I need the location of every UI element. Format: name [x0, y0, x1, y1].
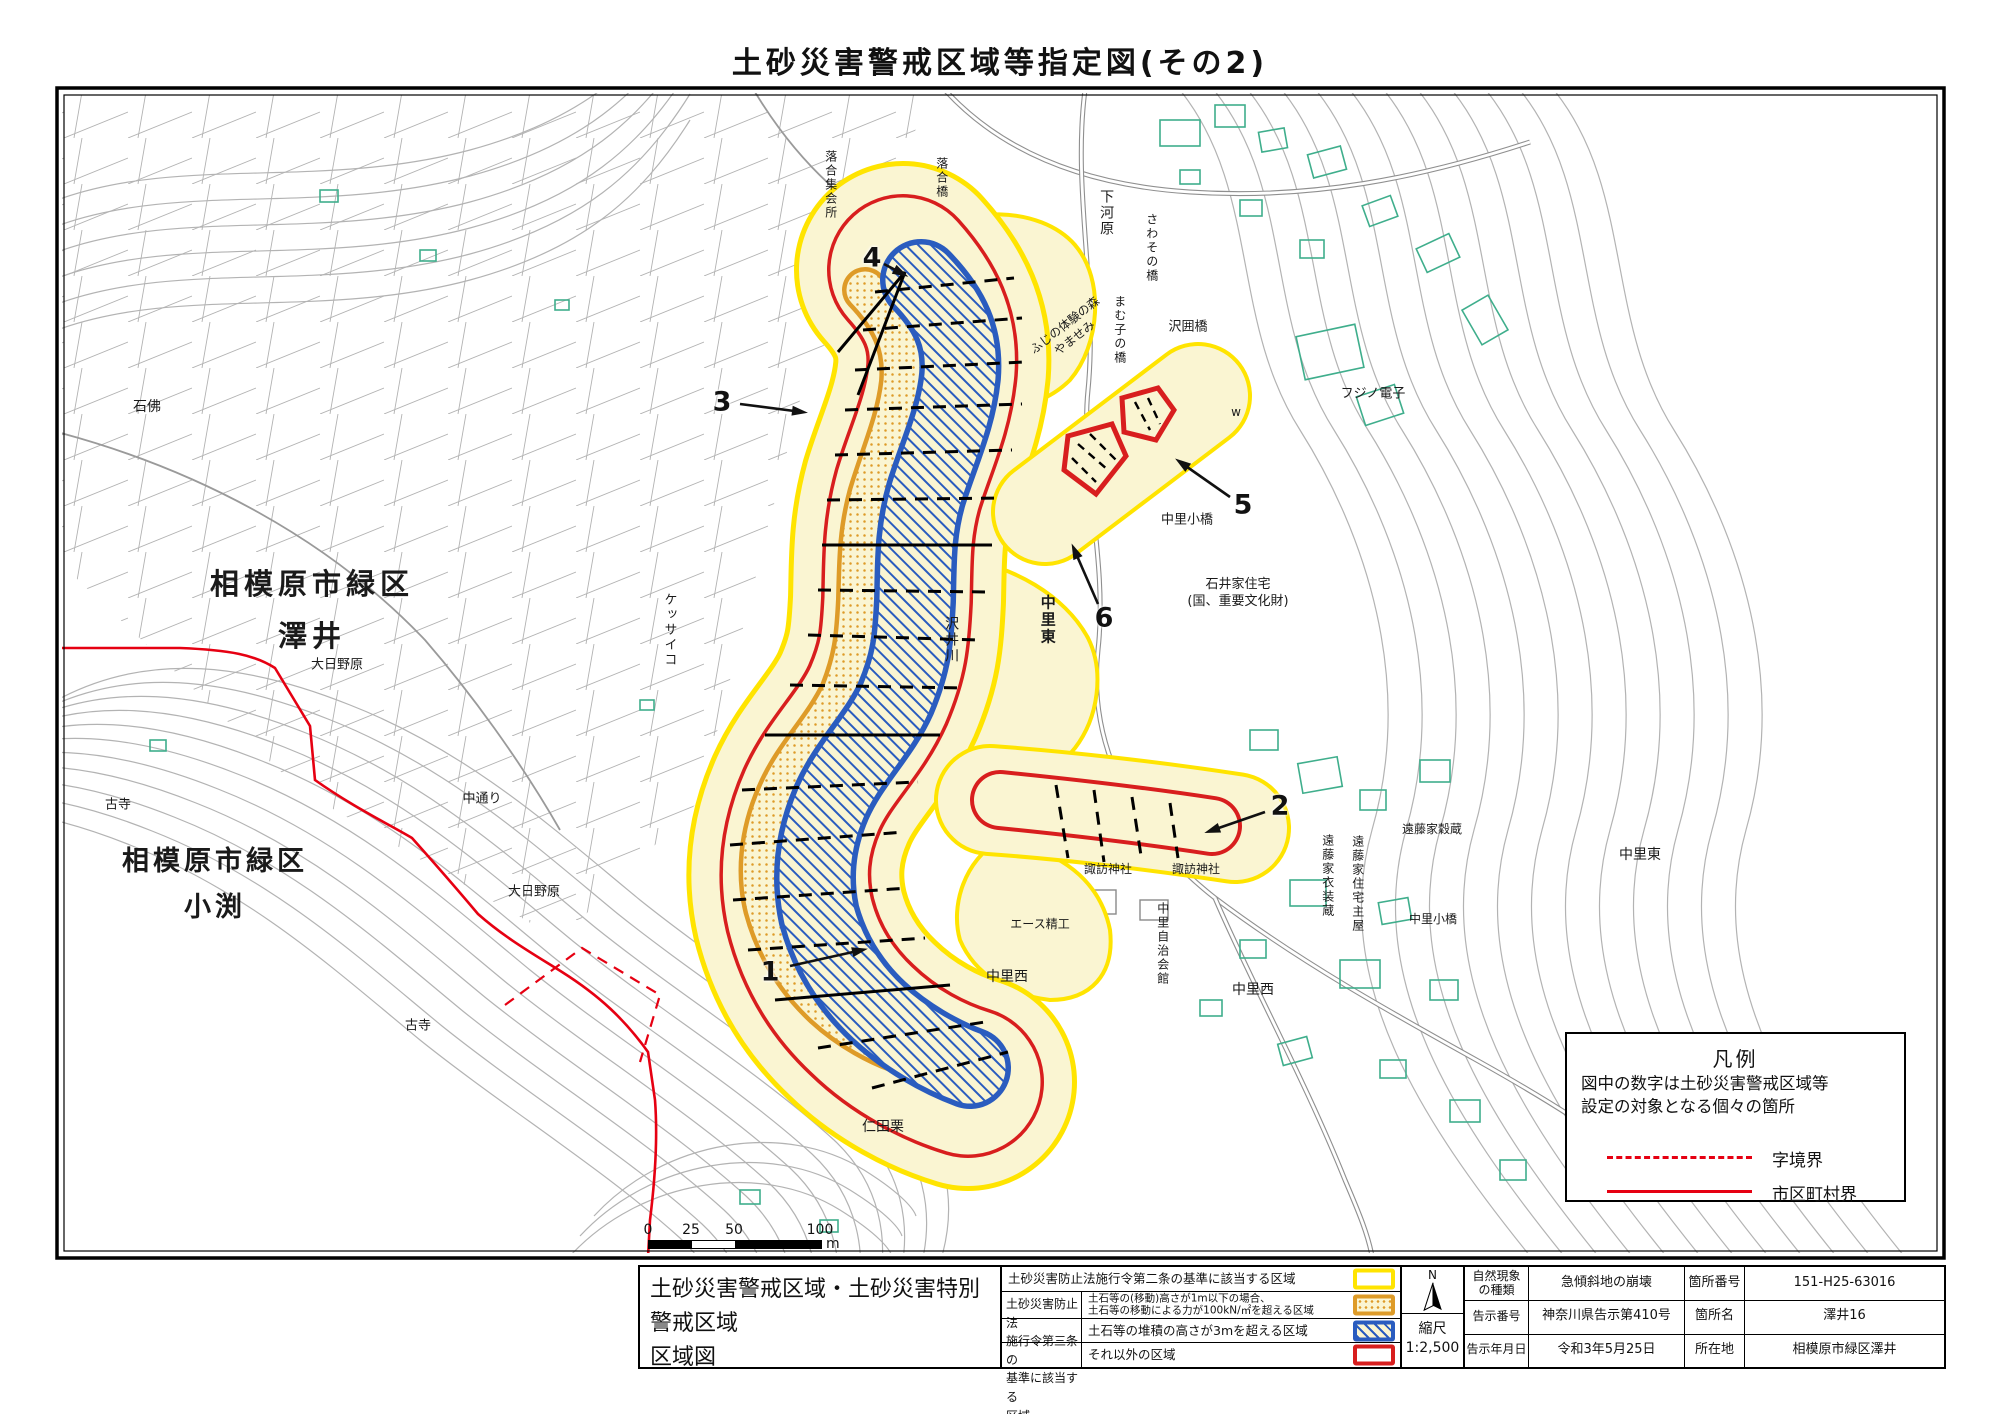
map-sheet-title-line2: 区域図: [650, 1341, 990, 1375]
legend-note-line2: 設定の対象となる個々の箇所: [1581, 1097, 1890, 1118]
legend-row-blue: 土石等の堆積の高さが3mを超える区域: [1002, 1319, 1400, 1343]
yellow-zone-swatch: [1353, 1269, 1395, 1290]
legend-row-yellow: 土砂災害防止法施行令第二条の基準に該当する区域: [1002, 1267, 1400, 1292]
aza-boundary-label: 字境界: [1772, 1146, 1823, 1171]
map-sheet-title-line1: 土砂災害警戒区域・土砂災害特別警戒区域: [650, 1273, 990, 1341]
north-label: N: [1402, 1268, 1463, 1282]
legend-title: 凡例: [1567, 1043, 1904, 1072]
scale-value: 1:2,500: [1402, 1340, 1463, 1356]
scale-label: 縮尺: [1402, 1318, 1463, 1338]
meta-key-notice-number: 告示番号: [1465, 1300, 1529, 1333]
legend-row-orange-text: 土石等の(移動)高さが1m以下の場合、 土石等の移動による力が100kN/㎡を超…: [1088, 1293, 1352, 1317]
scale-tick-25: 25: [682, 1222, 700, 1238]
scale-tick-0: 0: [644, 1222, 653, 1238]
meta-value-location: 相模原市緑区澤井: [1745, 1334, 1944, 1367]
scale-tick-50: 50: [725, 1222, 743, 1238]
north-arrow: N: [1402, 1267, 1463, 1314]
meta-value-site-number: 151-H25-63016: [1745, 1267, 1944, 1300]
meta-key-notice-date: 告示年月日: [1465, 1334, 1529, 1367]
meta-value-phenomenon: 急傾斜地の崩壊: [1529, 1267, 1685, 1300]
aza-boundary-line: [505, 948, 660, 1062]
legend-row-blue-text: 土石等の堆積の高さが3mを超える区域: [1088, 1324, 1352, 1338]
zone-legend-cell: 土砂災害防止法施行令第二条の基準に該当する区域 土砂災害防止法 施行令第三条の …: [1002, 1267, 1402, 1367]
municipal-boundary-label: 市区町村界: [1772, 1180, 1857, 1205]
scale-bar: 0 25 50 100 m: [640, 1222, 860, 1258]
legend-row-red: それ以外の区域: [1002, 1343, 1400, 1367]
meta-key-site-number: 箇所番号: [1685, 1267, 1745, 1300]
legend-row-orange: 土石等の(移動)高さが1m以下の場合、 土石等の移動による力が100kN/㎡を超…: [1002, 1292, 1400, 1319]
north-arrow-icon: [1420, 1281, 1446, 1311]
scale-unit: m: [826, 1236, 840, 1252]
aza-boundary-sample: [1607, 1156, 1752, 1159]
legend-row-orange-line1: 土石等の(移動)高さが1m以下の場合、: [1088, 1293, 1352, 1305]
legend-row-orange-line2: 土石等の移動による力が100kN/㎡を超える区域: [1088, 1305, 1352, 1317]
metadata-row: 告示年月日 令和3年5月25日 所在地 相模原市緑区澤井: [1465, 1334, 1944, 1367]
blue-zone-swatch: [1353, 1320, 1395, 1341]
red-zone-swatch: [1353, 1345, 1395, 1366]
map-legend-box: 凡例 図中の数字は土砂災害警戒区域等 設定の対象となる個々の箇所 字境界 市区町…: [1565, 1032, 1906, 1202]
meta-key-phenomenon: 自然現象 の種類: [1465, 1267, 1529, 1300]
metadata-row: 告示番号 神奈川県告示第410号 箇所名 澤井16: [1465, 1300, 1944, 1334]
scale-bar-graphic: [648, 1240, 822, 1249]
meta-value-site-name: 澤井16: [1745, 1300, 1944, 1333]
metadata-row: 自然現象 の種類 急傾斜地の崩壊 箇所番号 151-H25-63016: [1465, 1267, 1944, 1301]
legend-note-line1: 図中の数字は土砂災害警戒区域等: [1581, 1074, 1890, 1095]
hazard-map-sheet: 土砂災害警戒区域等指定図(その2): [0, 0, 2000, 1414]
metadata-cell: 自然現象 の種類 急傾斜地の崩壊 箇所番号 151-H25-63016 告示番号…: [1465, 1267, 1944, 1367]
municipal-boundary-sample: [1607, 1190, 1752, 1193]
map-sheet-title-cell: 土砂災害警戒区域・土砂災害特別警戒区域 区域図: [640, 1267, 1002, 1367]
legend-row-yellow-text: 土砂災害防止法施行令第二条の基準に該当する区域: [1008, 1272, 1352, 1286]
meta-key-site-name: 箇所名: [1685, 1300, 1745, 1333]
meta-value-notice-number: 神奈川県告示第410号: [1529, 1300, 1685, 1333]
scale-cell: N 縮尺 1:2,500: [1402, 1267, 1465, 1367]
legend-row-red-text: それ以外の区域: [1088, 1348, 1352, 1362]
orange-zone-swatch: [1353, 1295, 1395, 1316]
meta-key-location: 所在地: [1685, 1334, 1745, 1367]
map-info-table: 土砂災害警戒区域・土砂災害特別警戒区域 区域図 土砂災害防止法施行令第二条の基準…: [638, 1265, 1946, 1369]
meta-value-notice-date: 令和3年5月25日: [1529, 1334, 1685, 1367]
